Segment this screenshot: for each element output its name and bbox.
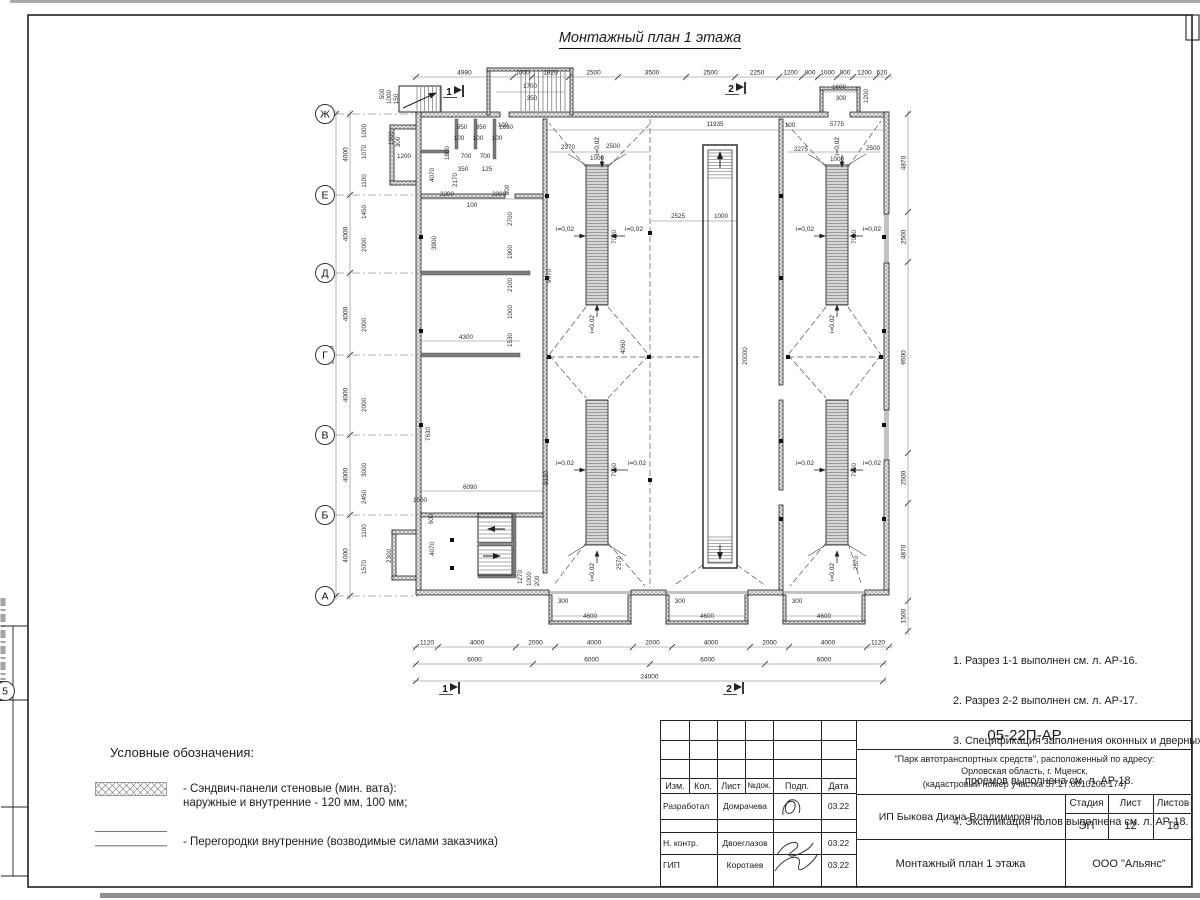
slope-label: i=0,02 xyxy=(556,226,574,233)
pilaster-marker xyxy=(779,439,783,443)
dimension-label: 1000 xyxy=(714,213,729,220)
dimension-label: 2500 xyxy=(866,145,881,152)
slope-label: i=0,02 xyxy=(594,137,601,155)
dimension-label: 1000 xyxy=(515,70,530,77)
axis-label: 5 xyxy=(2,686,8,698)
dimension-label: 2570 xyxy=(853,556,860,571)
dimension-label: 2370 xyxy=(561,144,576,151)
project-line: Орловская область, г. Мценск, xyxy=(856,765,1193,778)
direction-arrow xyxy=(403,93,436,108)
slope-dashed-line xyxy=(848,121,881,167)
dimension-label: 2250 xyxy=(750,70,765,77)
dimension-label: 4000 xyxy=(343,147,350,162)
dimension-label: 1120 xyxy=(871,640,885,647)
drawing-sheet: 4980100019202500350025002250120080010008… xyxy=(0,0,1200,900)
dimension-label: 1500 xyxy=(413,497,428,504)
wall-sandwich-panel xyxy=(666,621,748,624)
dimension-label: 1070 xyxy=(361,145,368,160)
dimension-label: 1000 xyxy=(361,124,368,139)
slope-label: i=0,02 xyxy=(863,226,881,233)
dimension-label: 100 xyxy=(785,122,796,129)
dimension-label: 1690 xyxy=(499,124,514,131)
wall-partition xyxy=(421,353,520,357)
dimension-label: 2170 xyxy=(452,173,459,188)
wall-sandwich-panel xyxy=(543,119,547,573)
wall-sandwich-panel xyxy=(820,87,823,112)
pilaster-marker xyxy=(648,478,652,482)
dimension-label: 2525 xyxy=(671,213,686,220)
slope-label: i=0,02 xyxy=(863,460,881,467)
dimension-label: 2500 xyxy=(901,229,908,244)
dimension-label: 4000 xyxy=(343,226,350,241)
role-gip: ГИП xyxy=(661,854,717,876)
wall-sandwich-panel xyxy=(549,595,552,624)
dimension-label: 100 xyxy=(467,202,478,209)
dimension-label: 300 xyxy=(395,136,402,147)
slope-label: i=0,02 xyxy=(625,226,643,233)
client-name: ИП Быкова Диана Владимировна xyxy=(856,794,1065,839)
section-mark-flag xyxy=(734,683,742,691)
wall-sandwich-panel xyxy=(392,530,416,534)
project-description: "Парк автотранспортных средств", располо… xyxy=(856,749,1193,794)
axis-label: А xyxy=(321,591,328,603)
dimension-label: 6000 xyxy=(467,657,482,664)
ramp-flare-line xyxy=(808,545,826,556)
document-code: 05-22П-АР xyxy=(856,721,1193,749)
dimension-label: 200 xyxy=(534,575,541,586)
dimension-label: 24000 xyxy=(640,674,658,681)
date-gip: 03.22 xyxy=(821,854,856,876)
ramp xyxy=(586,400,608,545)
wall-sandwich-panel xyxy=(509,112,828,117)
dimension-label: 700 xyxy=(461,153,472,160)
wall-sandwich-panel xyxy=(392,576,416,580)
pilaster-marker xyxy=(786,355,790,359)
col-header-podp: Подп. xyxy=(773,778,821,793)
project-line: "Парк автотранспортных средств", располо… xyxy=(856,753,1193,766)
stage-label: Стадия xyxy=(1065,794,1108,813)
section-mark-flag xyxy=(736,83,744,91)
wall-sandwich-panel xyxy=(628,595,631,624)
dimension-label: 1120 xyxy=(420,640,434,647)
axis-label: Д xyxy=(321,268,328,280)
pilaster-marker xyxy=(547,355,551,359)
col-header-kol: Кол. xyxy=(689,778,717,793)
dimension-label: 11935 xyxy=(706,121,724,128)
dimension-label: 950 xyxy=(476,124,487,131)
dimension-label: 2000 xyxy=(528,640,543,647)
note-line: 2. Разрез 2-2 выполнен см. л. АР-17. xyxy=(953,695,1200,708)
dimension-label: 2500 xyxy=(586,70,601,77)
pilaster-marker xyxy=(647,355,651,359)
dimension-label: 4600 xyxy=(700,613,715,620)
dimension-label: 9500 xyxy=(901,350,908,365)
slope-label: i=0,02 xyxy=(796,460,814,467)
slope-dashed-line xyxy=(553,543,586,586)
outline-rect xyxy=(399,86,441,112)
dimension-label: 100 xyxy=(473,135,484,142)
stage-value: ЭП xyxy=(1065,813,1108,839)
wall-opening xyxy=(783,591,865,594)
dimension-label: 1000 xyxy=(386,90,393,105)
slope-dashed-line xyxy=(788,355,826,398)
dimension-label: 2500 xyxy=(703,70,718,77)
dimension-label: 1200 xyxy=(397,153,412,160)
dimension-label: 2450 xyxy=(361,490,368,505)
wall-opening xyxy=(666,591,748,594)
dimension-label: 4600 xyxy=(817,613,832,620)
dimension-label: 1800 xyxy=(444,146,451,161)
dimension-label: 1600 xyxy=(388,131,395,146)
dimension-label: 350 xyxy=(458,166,469,173)
pilaster-marker xyxy=(419,235,423,239)
wall-partition xyxy=(421,271,530,275)
slope-dashed-line xyxy=(790,543,826,586)
axis-label: Б xyxy=(322,510,329,522)
dimension-label: 3900 xyxy=(431,236,438,251)
slope-dashed-line xyxy=(549,307,586,355)
wall-sandwich-panel xyxy=(631,590,666,595)
dimension-label: 3000 xyxy=(361,463,368,478)
dimension-label: 1000 xyxy=(507,305,514,320)
wall-sandwich-panel xyxy=(783,621,865,624)
dimension-label: 2700 xyxy=(507,212,514,227)
dimension-label: 2000 xyxy=(361,238,368,253)
sheet-label: Лист xyxy=(1108,794,1153,813)
axis-label: Е xyxy=(321,190,328,202)
dimension-label: 1200 xyxy=(783,70,798,77)
dimension-label: 7000 xyxy=(851,230,858,245)
dimension-label: 4060 xyxy=(620,340,627,355)
dimension-label: 2500 xyxy=(901,470,908,485)
legend-item-text: - Сэндвич-панели стеновые (мин. вата): xyxy=(183,783,407,797)
dimension-label: 1100 xyxy=(361,524,368,538)
dimension-label: 6000 xyxy=(584,657,599,664)
legend-header: Условные обозначения: xyxy=(110,745,254,760)
note-line: 1. Разрез 1-1 выполнен см. л. АР-16. xyxy=(953,655,1200,668)
ramp xyxy=(826,400,848,545)
wall-sandwich-panel xyxy=(748,590,783,595)
dimension-label: 2500 xyxy=(606,143,621,150)
dimension-label: 7000 xyxy=(611,230,618,245)
slope-dashed-line xyxy=(786,123,826,167)
slope-label: i=0,02 xyxy=(829,315,836,333)
dimension-label: 2570 xyxy=(616,556,623,571)
wall-sandwich-panel xyxy=(416,590,549,595)
slope-dashed-line xyxy=(608,355,649,398)
role-developer: Разработал xyxy=(661,793,717,819)
dimension-label: 150 xyxy=(393,93,400,104)
dimension-label: 800 xyxy=(840,70,851,77)
ramp-flare-line xyxy=(848,154,866,165)
pilaster-marker xyxy=(419,423,423,427)
dimension-label: 4000 xyxy=(343,548,350,563)
dimension-label: 800 xyxy=(805,70,816,77)
dimension-label: 600 xyxy=(428,513,435,524)
dimension-label: 4000 xyxy=(343,387,350,402)
sandwich-panel-swatch xyxy=(95,782,167,796)
wall-sandwich-panel xyxy=(515,194,543,198)
wall-sandwich-panel xyxy=(862,595,865,624)
ramp-flare-line xyxy=(808,154,826,165)
pilaster-marker xyxy=(779,517,783,521)
dimension-label: 4870 xyxy=(901,544,908,559)
pilaster-marker xyxy=(779,276,783,280)
ramp-flare-line xyxy=(848,545,866,556)
name-gip: Коротаев xyxy=(717,854,773,876)
sheet-edge-top xyxy=(10,0,1200,3)
legend-item-text: наружные и внутренние - 120 мм, 100 мм; xyxy=(183,797,407,811)
dimension-label: 1500 xyxy=(901,608,908,623)
dimension-label: 7630 xyxy=(425,427,432,442)
pilaster-marker xyxy=(879,355,883,359)
ramp xyxy=(586,165,608,305)
ramp-flare-line xyxy=(608,545,626,556)
dimension-label: 1570 xyxy=(361,560,368,575)
pilaster-marker xyxy=(882,329,886,333)
date-developer: 03.22 xyxy=(821,793,856,819)
dimension-label: 1200 xyxy=(857,70,872,77)
section-mark-label: 2 xyxy=(726,684,732,695)
pilaster-marker xyxy=(419,329,423,333)
col-header-data: Дата xyxy=(821,778,856,793)
pilaster-marker xyxy=(648,231,652,235)
dimension-label: 4000 xyxy=(470,640,485,647)
dimension-label: 4870 xyxy=(901,155,908,170)
page-title: Монтажный план 1 этажа xyxy=(540,30,760,49)
wall-opening xyxy=(884,410,889,460)
pilaster-marker xyxy=(450,538,454,542)
sheets-label: Листов xyxy=(1153,794,1193,813)
dimension-label: 1100 xyxy=(361,174,368,188)
dimension-label: 2000 xyxy=(361,398,368,413)
legend-item-sandwich-panels: - Сэндвич-панели стеновые (мин. вата): н… xyxy=(183,783,407,810)
dimension-label: 5775 xyxy=(830,121,845,128)
pilaster-marker xyxy=(545,439,549,443)
wall-opening xyxy=(549,591,631,594)
dimension-label: 500 xyxy=(379,88,386,99)
dimension-label: 620 xyxy=(877,70,888,77)
dimension-label: 1000 xyxy=(820,70,835,77)
dimension-label: 20000 xyxy=(742,347,749,365)
dimension-label: 300 xyxy=(675,598,686,605)
dimension-label: 4980 xyxy=(457,70,472,77)
pilaster-marker xyxy=(545,194,549,198)
slope-label: i=0,02 xyxy=(556,460,574,467)
slope-dashed-line xyxy=(608,307,649,355)
slope-dashed-line xyxy=(673,565,703,586)
pilaster-marker xyxy=(450,566,454,570)
sheet-edge-bottom xyxy=(100,893,1200,898)
slope-dashed-line xyxy=(848,307,881,355)
dimension-label: 9130 xyxy=(543,471,550,486)
wall-partition xyxy=(513,513,516,577)
pilaster-marker xyxy=(882,423,886,427)
wall-sandwich-panel xyxy=(779,400,783,490)
axis-label: В xyxy=(321,430,328,442)
section-mark-flag xyxy=(450,683,458,691)
slope-label: i=0,02 xyxy=(796,226,814,233)
wall-sandwich-panel xyxy=(549,621,631,624)
dimension-label: 2300 xyxy=(386,549,393,564)
dimension-label: 4070 xyxy=(429,542,436,557)
legend-item-partitions: - Перегородки внутренние (возводимые сил… xyxy=(183,836,498,848)
wall-sandwich-panel xyxy=(421,513,543,517)
dimension-label: 4000 xyxy=(821,640,836,647)
section-mark-label: 2 xyxy=(728,84,734,95)
outline-rect xyxy=(478,513,512,543)
signatures xyxy=(773,793,821,888)
dimension-label: 1000 xyxy=(526,572,533,587)
slope-dashed-line xyxy=(549,355,586,398)
slope-label: i=0,02 xyxy=(589,315,596,333)
pilaster-marker xyxy=(779,194,783,198)
dimension-label: 4000 xyxy=(343,306,350,321)
wall-sandwich-panel xyxy=(487,68,490,115)
name-normcontrol: Двоеглазов xyxy=(717,832,773,854)
ramp-flare-line xyxy=(568,154,586,165)
ramp xyxy=(826,165,848,305)
dimension-label: 2000 xyxy=(361,318,368,333)
outline-rect xyxy=(478,545,512,575)
dimension-label: 125 xyxy=(482,166,493,173)
dimension-label: 6000 xyxy=(817,657,832,664)
wall-sandwich-panel xyxy=(487,68,573,71)
sheets-total: 18 xyxy=(1153,813,1193,839)
slope-dashed-line xyxy=(788,307,826,355)
dimension-label: 950 xyxy=(457,124,468,131)
wall-sandwich-panel xyxy=(865,590,889,595)
partition-swatch xyxy=(95,831,167,846)
dimension-label: 1920 xyxy=(543,70,558,77)
section-mark-label: 1 xyxy=(446,87,452,98)
dimension-label: 1200 xyxy=(863,89,870,104)
slope-label: i=0,02 xyxy=(829,563,836,581)
col-header-ndok: №док. xyxy=(745,778,773,793)
dimension-label: 4000 xyxy=(587,640,602,647)
dimension-label: 100 xyxy=(454,135,465,142)
section-mark-label: 1 xyxy=(442,684,448,695)
dimension-label: 100 xyxy=(492,135,503,142)
outline-rect xyxy=(708,150,732,563)
dimension-label: 2200 xyxy=(440,191,455,198)
slope-label: i=0,02 xyxy=(628,460,646,467)
dimension-label: 4600 xyxy=(583,613,598,620)
role-normcontrol: Н. контр. xyxy=(661,832,717,854)
dimension-label: 9670 xyxy=(546,269,553,284)
pilaster-marker xyxy=(882,235,886,239)
dimension-label: 300 xyxy=(558,598,569,605)
dimension-label: 2100 xyxy=(507,278,514,293)
dimension-label: 2000 xyxy=(762,640,777,647)
wall-sandwich-panel xyxy=(666,595,669,624)
wall-sandwich-panel xyxy=(884,263,889,410)
dimension-label: 300 xyxy=(836,95,847,102)
dimension-label: 4000 xyxy=(343,467,350,482)
dimension-label: 1900 xyxy=(507,245,514,260)
wall-sandwich-panel xyxy=(884,460,889,590)
dimension-label: 1270 xyxy=(517,570,524,585)
dimension-label: 1700 xyxy=(523,83,538,90)
dimension-label: 1530 xyxy=(507,333,514,348)
axis-label: Г xyxy=(322,350,328,362)
dimension-label: 800 xyxy=(504,184,511,195)
wall-sandwich-panel xyxy=(745,595,748,624)
project-line: (кадастровый номер участка 57:27:0010206… xyxy=(856,778,1193,791)
pilaster-marker xyxy=(882,517,886,521)
drawing-title: Монтажный план 1 этажа xyxy=(856,839,1065,888)
dimension-label: 300 xyxy=(792,598,803,605)
organization-name: ООО "Альянс" xyxy=(1065,839,1193,888)
wall-sandwich-panel xyxy=(390,181,416,185)
name-developer: Домрачева xyxy=(717,793,773,819)
wall-sandwich-panel xyxy=(416,112,421,590)
section-mark-flag xyxy=(454,86,462,94)
ramp-flare-line xyxy=(608,154,626,165)
dimension-label: 4070 xyxy=(429,168,436,183)
dimension-label: 4300 xyxy=(459,334,474,341)
wall-sandwich-panel xyxy=(390,125,416,129)
dimension-label: 6000 xyxy=(700,657,715,664)
col-header-izm: Изм. xyxy=(661,778,689,793)
wall-sandwich-panel xyxy=(857,87,860,112)
wall-sandwich-panel xyxy=(783,595,786,624)
col-header-list: Лист xyxy=(717,778,745,793)
wall-sandwich-panel xyxy=(884,112,889,214)
dimension-label: 1450 xyxy=(361,205,368,220)
slope-dashed-line xyxy=(608,543,645,586)
slope-dashed-line xyxy=(848,355,881,398)
date-normcontrol: 03.22 xyxy=(821,832,856,854)
title-block: 05-22П-АР "Парк автотранспортных средств… xyxy=(660,720,1192,887)
sheet-number: 12 xyxy=(1108,813,1153,839)
dimension-label: 2275 xyxy=(794,146,809,153)
wall-sandwich-panel xyxy=(779,119,783,385)
axis-label: Ж xyxy=(320,109,330,121)
dimension-label: 1600 xyxy=(832,84,847,91)
slope-dashed-line xyxy=(737,565,766,586)
dimension-label: 350 xyxy=(527,95,538,102)
dimension-label: 2000 xyxy=(645,640,660,647)
dimension-label: 700 xyxy=(480,153,491,160)
wall-sandwich-panel xyxy=(850,112,888,117)
slope-label: i=0,02 xyxy=(589,563,596,581)
dimension-label: 6090 xyxy=(463,484,478,491)
slope-label: i=0,02 xyxy=(834,137,841,155)
dimension-label: 4000 xyxy=(704,640,719,647)
dimension-label: 3500 xyxy=(645,70,660,77)
